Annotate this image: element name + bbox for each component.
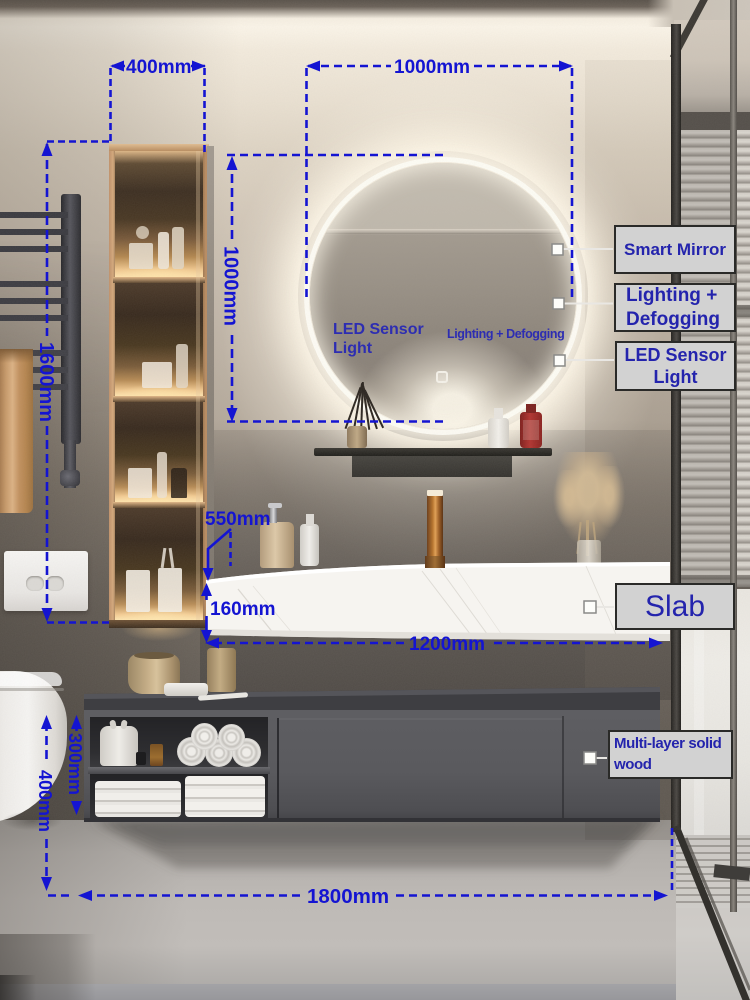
svg-text:160mm: 160mm: [210, 599, 276, 620]
svg-text:1200mm: 1200mm: [409, 634, 485, 655]
svg-text:550mm: 550mm: [205, 509, 271, 530]
svg-text:1000mm: 1000mm: [220, 246, 242, 326]
svg-text:400mm: 400mm: [35, 770, 55, 832]
svg-text:1000mm: 1000mm: [394, 57, 470, 78]
svg-text:1600mm: 1600mm: [35, 342, 57, 422]
svg-text:400mm: 400mm: [126, 57, 192, 78]
svg-text:300mm: 300mm: [65, 733, 85, 795]
svg-text:1800mm: 1800mm: [307, 885, 389, 908]
